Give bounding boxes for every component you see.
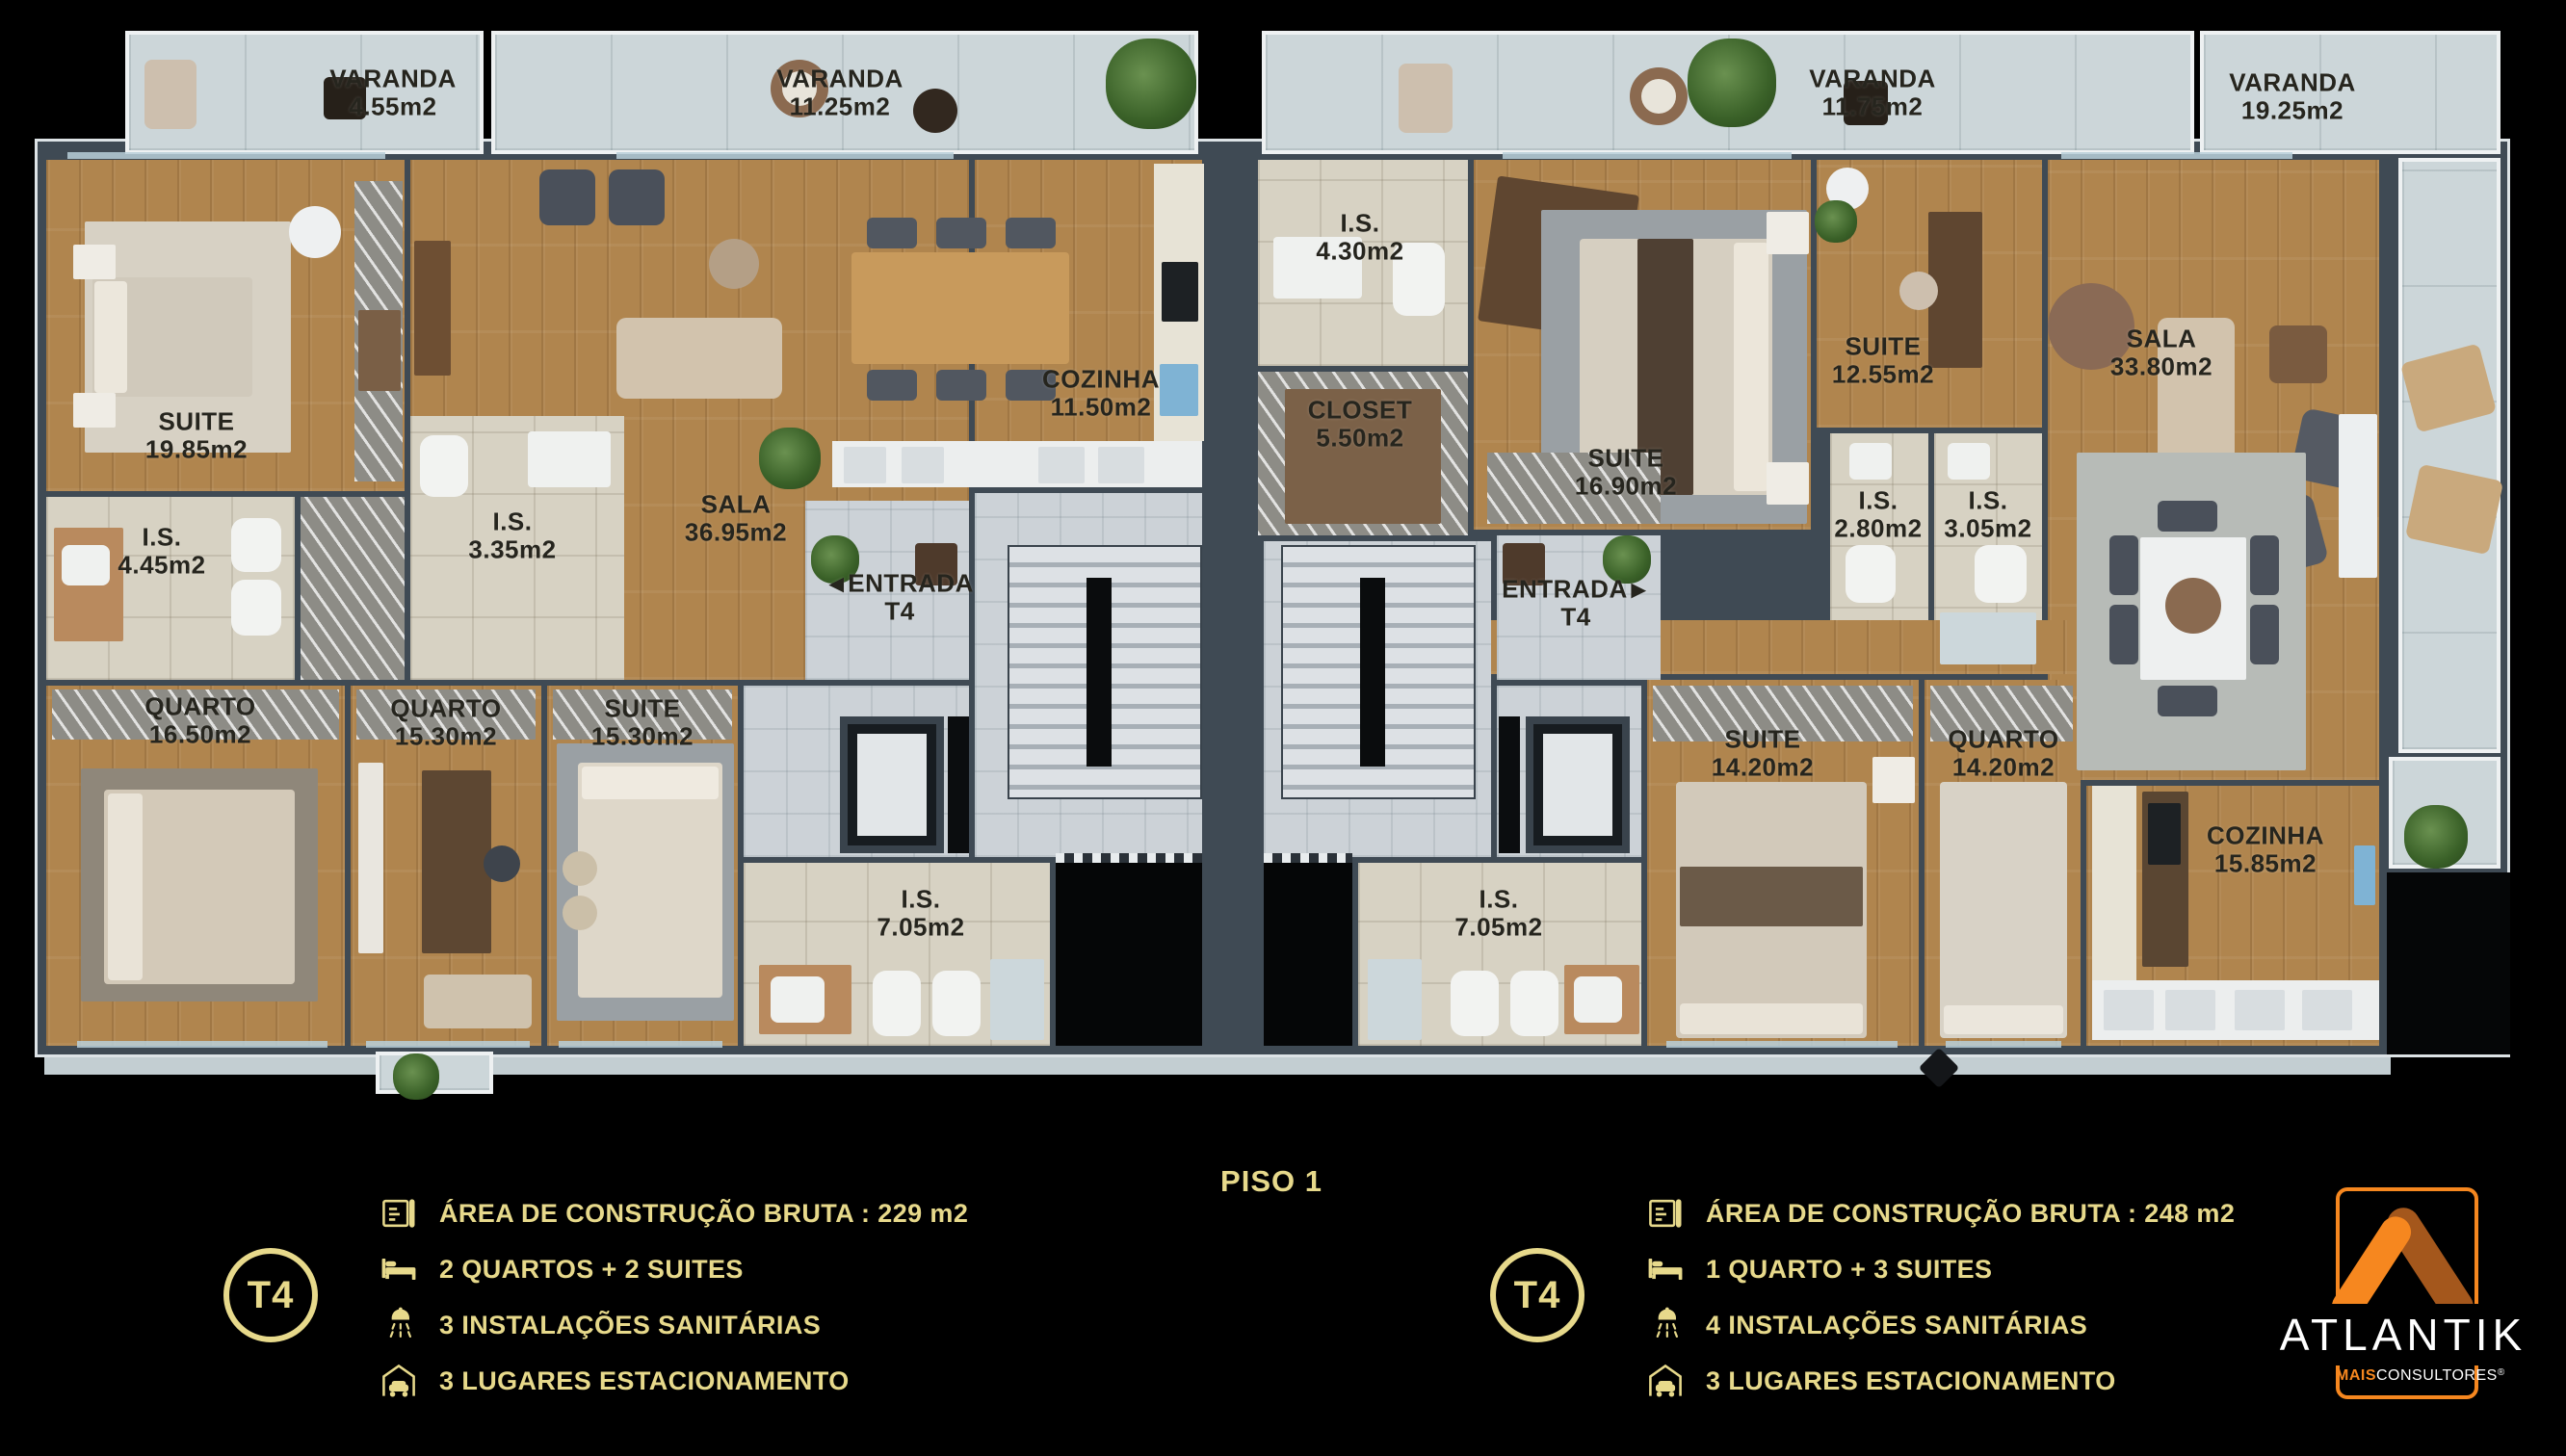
spec-text: 2 QUARTOS + 2 SUITES: [439, 1255, 744, 1285]
chair: [1006, 218, 1056, 248]
room-label-entrada-t4-left: ◀ENTRADAT4: [825, 569, 974, 624]
armchair: [144, 60, 196, 129]
plant-icon: [2404, 805, 2468, 869]
floor-title: PISO 1: [1220, 1164, 1322, 1199]
appliance: [2302, 990, 2352, 1030]
ball-chair: [913, 89, 957, 133]
spec-text: 3 LUGARES ESTACIONAMENTO: [1706, 1366, 2116, 1396]
plant-icon: [1106, 39, 1196, 129]
spec-row: ÁREA DE CONSTRUÇÃO BRUTA : 229 m2: [378, 1192, 968, 1235]
room-label-is-3-35: I.S.3.35m2: [468, 507, 556, 562]
bench: [424, 975, 532, 1028]
elevator: [840, 716, 944, 853]
plant-icon: [1688, 39, 1776, 127]
unit-specs-list: ÁREA DE CONSTRUÇÃO BRUTA : 248 m21 QUART…: [1644, 1192, 2235, 1402]
dash-strip: [1264, 853, 1352, 863]
room-label-quarto-16-50: QUARTO16.50m2: [144, 692, 255, 747]
armchair: [609, 169, 665, 225]
logo-subtitle: MAISCONSULTORES®: [2336, 1367, 2471, 1385]
nightstand: [1767, 212, 1809, 254]
unit-1-info-panel: T4ÁREA DE CONSTRUÇÃO BRUTA : 229 m22 QUA…: [222, 1192, 1165, 1409]
logo-sub-rest: CONSULTORES: [2376, 1367, 2498, 1384]
shower: [1940, 612, 2036, 664]
pillows: [1944, 1005, 2063, 1034]
room-label-is-7-05-right: I.S.7.05m2: [1454, 885, 1542, 940]
room-label-cozinha-11-50: COZINHA11.50m2: [1042, 365, 1160, 420]
spec-text: ÁREA DE CONSTRUÇÃO BRUTA : 229 m2: [439, 1199, 968, 1229]
chair: [2158, 501, 2217, 532]
window-glass: [1946, 1041, 2061, 1048]
room-label-closet-5-50: CLOSET5.50m2: [1308, 396, 1412, 451]
sink: [2354, 845, 2375, 905]
floorplan-page: VARANDA4.55m2VARANDA11.25m2VARANDA11.75m…: [0, 0, 2566, 1456]
chair: [2109, 605, 2138, 664]
ottoman: [563, 851, 597, 886]
plant-icon: [759, 428, 821, 489]
spec-text: 3 LUGARES ESTACIONAMENTO: [439, 1366, 850, 1396]
room-label-is-4-30: I.S.4.30m2: [1316, 209, 1403, 264]
chair: [867, 370, 917, 401]
spec-row: 3 INSTALAÇÕES SANITÁRIAS: [378, 1304, 968, 1346]
room-label-sala-36-95: SALA36.95m2: [685, 490, 787, 545]
throw: [1680, 867, 1863, 926]
room-varanda-4-side: [2398, 158, 2501, 753]
chair: [484, 845, 520, 882]
vanity: [528, 431, 611, 487]
room-shaft-void-left: [1056, 863, 1202, 1046]
chair: [2158, 686, 2217, 716]
pillows: [94, 281, 127, 393]
stove: [1162, 262, 1198, 322]
sink: [1160, 364, 1198, 416]
appliance: [2235, 990, 2285, 1030]
blueprint-icon: [378, 1192, 420, 1235]
pillows: [1734, 243, 1768, 491]
toilet: [1975, 545, 2027, 603]
spec-row: ÁREA DE CONSTRUÇÃO BRUTA : 248 m2: [1644, 1192, 2235, 1235]
room-label-suite-12-55: SUITE12.55m2: [1832, 332, 1934, 387]
dining-table: [851, 252, 1069, 364]
entrance-arrow-icon: ◀: [829, 574, 844, 594]
stair-gap: [1087, 578, 1112, 767]
room-label-is-3-05: I.S.3.05m2: [1944, 486, 2031, 541]
basin: [1849, 443, 1892, 480]
shower: [1368, 959, 1422, 1040]
pillows: [582, 767, 719, 799]
shower-icon: [378, 1304, 420, 1346]
toilet: [1510, 971, 1558, 1036]
room-label-quarto-15-30: QUARTO15.30m2: [390, 694, 501, 749]
bed-icon: [1644, 1248, 1687, 1290]
room-label-cozinha-15-85: COZINHA15.85m2: [2207, 821, 2324, 876]
room-label-quarto-14-20: QUARTO14.20m2: [1948, 725, 2058, 780]
room-label-is-7-05-left: I.S.7.05m2: [877, 885, 964, 940]
nightstand: [73, 245, 116, 279]
spec-text: 1 QUARTO + 3 SUITES: [1706, 1255, 1992, 1285]
basin: [771, 976, 825, 1023]
chair: [1899, 272, 1938, 310]
toilet: [231, 580, 281, 636]
room-label-varanda-2: VARANDA11.25m2: [776, 65, 903, 119]
desk: [422, 770, 491, 953]
appliance: [2104, 990, 2154, 1030]
basin: [62, 545, 110, 585]
plant-icon: [1815, 200, 1857, 243]
chair: [936, 370, 986, 401]
appliance: [1038, 447, 1085, 483]
window-glass: [2061, 152, 2292, 159]
ottoman: [563, 896, 597, 930]
console: [2339, 414, 2377, 578]
dresser: [358, 310, 401, 391]
elevator: [1526, 716, 1630, 853]
window-glass: [1503, 152, 1792, 159]
stair-gap: [1360, 578, 1385, 767]
garage-icon: [1644, 1360, 1687, 1402]
armchair: [539, 169, 595, 225]
room-label-suite-19-85: SUITE19.85m2: [145, 407, 248, 462]
sofa: [616, 318, 782, 399]
chair: [2109, 535, 2138, 595]
chair: [2250, 605, 2279, 664]
room-label-is-4-45: I.S.4.45m2: [118, 523, 205, 578]
blueprint-icon: [1644, 1192, 1687, 1235]
chair: [936, 218, 986, 248]
counter: [2092, 786, 2136, 980]
toilet: [1451, 971, 1499, 1036]
room-label-is-2-80: I.S.2.80m2: [1834, 486, 1922, 541]
bed-icon: [378, 1248, 420, 1290]
hat-chair: [289, 206, 341, 258]
room-closet-hall: [301, 497, 405, 680]
room-shaft-void-right: [1264, 863, 1352, 1046]
toilet: [873, 971, 921, 1036]
room-label-sala-33-80: SALA33.80m2: [2110, 325, 2213, 379]
pillows: [108, 793, 143, 980]
coffee-table: [709, 239, 759, 289]
spec-text: ÁREA DE CONSTRUÇÃO BRUTA : 248 m2: [1706, 1199, 2235, 1229]
room-label-entrada-t4-right: ENTRADA▶T4: [1502, 575, 1650, 630]
toilet: [1846, 545, 1896, 603]
unit-type-label: T4: [1514, 1274, 1561, 1317]
spec-row: 1 QUARTO + 3 SUITES: [1644, 1248, 2235, 1290]
window-glass: [1666, 1041, 1898, 1048]
sideboard: [414, 241, 451, 376]
logo-wordmark: ATLANTIK: [2265, 1304, 2541, 1365]
unit-specs-list: ÁREA DE CONSTRUÇÃO BRUTA : 229 m22 QUART…: [378, 1192, 968, 1402]
spec-row: 3 LUGARES ESTACIONAMENTO: [378, 1360, 968, 1402]
egg-chair-cushion: [1641, 79, 1676, 114]
chair: [2250, 535, 2279, 595]
unit-type-badge: T4: [1490, 1248, 1584, 1342]
room-void-bottom-right: [2387, 872, 2510, 1054]
bed: [1940, 782, 2067, 1038]
toilet: [231, 518, 281, 572]
hob: [2148, 803, 2181, 865]
room-label-suite-14-20: SUITE14.20m2: [1712, 725, 1814, 780]
nightstand: [1872, 757, 1915, 803]
appliance: [902, 447, 944, 483]
counter: [832, 441, 1202, 487]
unit-type-label: T4: [248, 1274, 295, 1317]
appliance: [844, 447, 886, 483]
shower: [990, 959, 1044, 1040]
toilet: [420, 435, 468, 497]
nightstand: [73, 393, 116, 428]
room-label-suite-15-30: SUITE15.30m2: [591, 694, 694, 749]
plant-icon: [393, 1053, 439, 1100]
room-label-varanda-1: VARANDA4.55m2: [329, 65, 457, 119]
armchair: [1399, 64, 1453, 133]
window-glass: [77, 1041, 327, 1048]
spec-row: 3 LUGARES ESTACIONAMENTO: [1644, 1360, 2235, 1402]
unit-type-badge: T4: [223, 1248, 318, 1342]
spec-row: 4 INSTALAÇÕES SANITÁRIAS: [1644, 1304, 2235, 1346]
basin: [1574, 976, 1622, 1023]
entrance-arrow-icon: ▶: [1632, 580, 1646, 600]
window-glass: [616, 152, 954, 159]
window-glass: [366, 1041, 530, 1048]
appliance: [1098, 447, 1144, 483]
pillows: [1680, 1003, 1863, 1034]
nightstand: [1767, 462, 1809, 505]
unit-2-info-panel: T4ÁREA DE CONSTRUÇÃO BRUTA : 248 m21 QUA…: [1488, 1192, 2432, 1409]
window-glass: [67, 152, 385, 159]
room-label-suite-16-90: SUITE16.90m2: [1575, 444, 1677, 499]
toilet: [932, 971, 981, 1036]
logo-sub-bold: MAIS: [2336, 1367, 2376, 1384]
chair: [867, 218, 917, 248]
shower-icon: [1644, 1304, 1687, 1346]
registered-mark: ®: [2498, 1367, 2505, 1378]
basin: [1948, 443, 1990, 480]
shelf: [358, 763, 383, 953]
garage-icon: [378, 1360, 420, 1402]
appliance: [2165, 990, 2215, 1030]
spec-text: 4 INSTALAÇÕES SANITÁRIAS: [1706, 1311, 2087, 1340]
centerpiece: [2165, 578, 2221, 634]
shaft: [948, 716, 969, 853]
window-glass: [559, 1041, 722, 1048]
coffee-table: [2269, 325, 2327, 383]
shaft: [1499, 716, 1520, 853]
spec-row: 2 QUARTOS + 2 SUITES: [378, 1248, 968, 1290]
dash-strip: [1056, 853, 1202, 863]
room-label-varanda-3: VARANDA11.75m2: [1809, 65, 1936, 119]
spec-text: 3 INSTALAÇÕES SANITÁRIAS: [439, 1311, 821, 1340]
room-label-varanda-4: VARANDA19.25m2: [2229, 68, 2356, 123]
